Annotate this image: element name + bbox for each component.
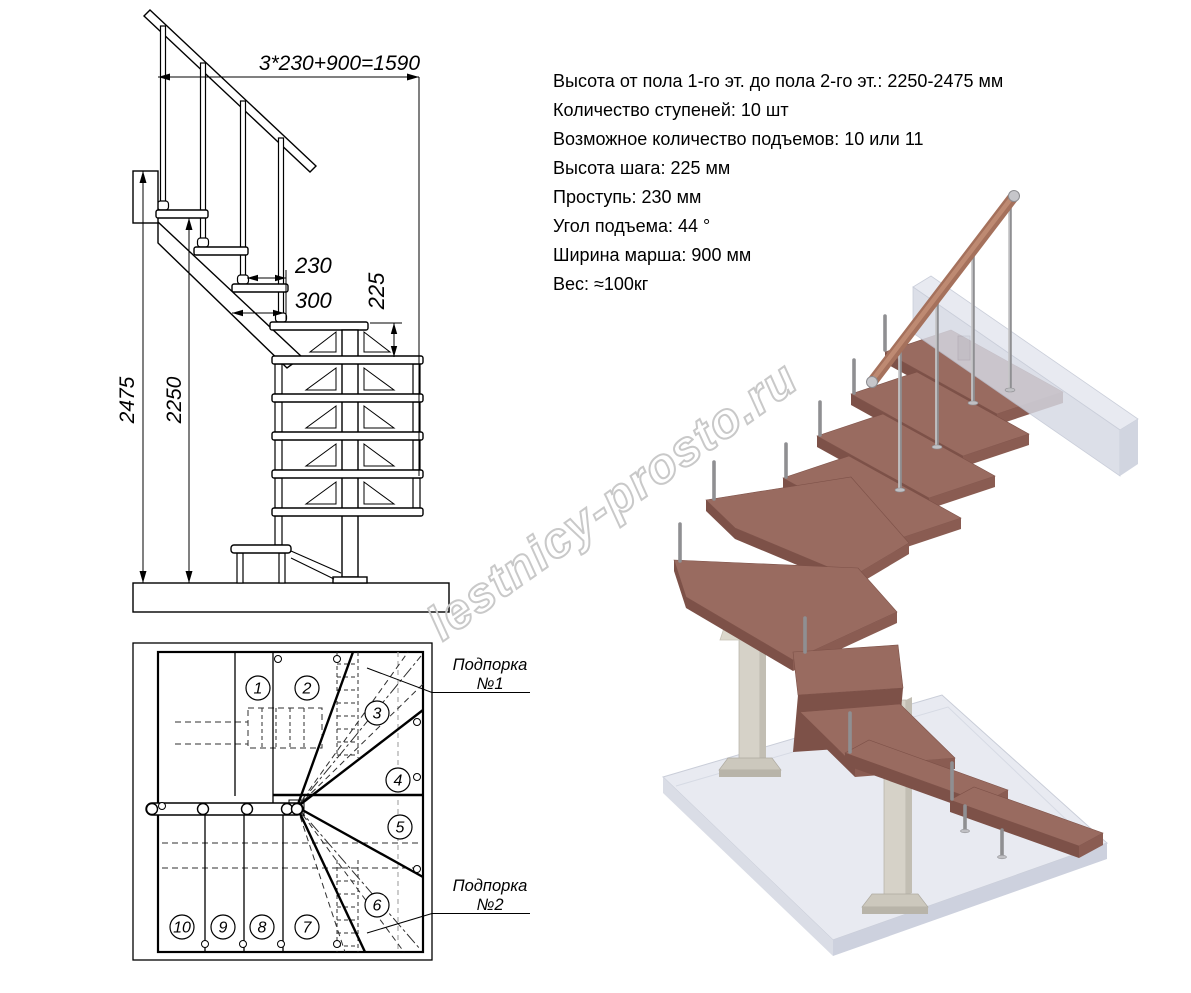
plan-baluster	[198, 804, 209, 815]
plan-baluster	[147, 804, 158, 815]
plan-baluster	[242, 804, 253, 815]
step-number-6: 6	[373, 898, 382, 915]
floor-slab	[133, 583, 449, 612]
spec-weight: Вес: ≈100кг	[553, 270, 1073, 299]
step-number-8: 8	[258, 920, 267, 937]
support2-title: Подпорка	[453, 877, 528, 895]
staircase-drawing-page: 3*230+900=1590 2475 2250 230 300	[0, 0, 1191, 993]
baluster	[201, 63, 206, 247]
spec-list: Высота от пола 1-го эт. до пола 2-го эт.…	[553, 67, 1073, 299]
dim-overlap: 300	[295, 288, 332, 313]
baluster-foot	[158, 201, 169, 210]
step-number-2: 2	[302, 681, 312, 698]
elevation-view: 3*230+900=1590 2475 2250 230 300	[116, 10, 449, 612]
step-number-1: 1	[254, 681, 263, 698]
step-number-10: 10	[173, 920, 191, 937]
baluster	[161, 26, 166, 210]
support2-number: №2	[476, 896, 503, 914]
step-number-3: 3	[373, 706, 382, 723]
column-base-plate	[333, 577, 367, 583]
support1-title: Подпорка	[453, 656, 528, 674]
spec-step-count: Количество ступеней: 10 шт	[553, 96, 1073, 125]
dim-height-max: 2475	[116, 376, 139, 424]
tread-edge	[232, 284, 288, 292]
step-number-4: 4	[394, 773, 403, 790]
handrail-end-cap	[867, 377, 878, 388]
step-number-5: 5	[396, 820, 405, 837]
spec-rise-count: Возможное количество подъемов: 10 или 11	[553, 125, 1073, 154]
baluster-foot	[238, 275, 249, 284]
baluster	[279, 138, 284, 322]
spec-tread-depth: Проступь: 230 мм	[553, 183, 1073, 212]
plan-view: 1 2 3 4 5 6 7 8 9 10 Подпорка №1	[133, 643, 530, 960]
spec-step-height: Высота шага: 225 мм	[553, 154, 1073, 183]
plan-baluster	[292, 804, 303, 815]
baluster	[241, 101, 246, 284]
dim-height-min: 2250	[163, 376, 186, 424]
wall-mount-plate	[958, 336, 970, 360]
center-column	[342, 330, 358, 577]
tread-edge	[156, 210, 208, 218]
baluster-foot	[198, 238, 209, 247]
handrail-elevation	[144, 10, 316, 172]
tread-edge	[270, 322, 368, 330]
step-number-7: 7	[303, 920, 313, 937]
tread-edge	[194, 247, 248, 255]
dim-total-width: 3*230+900=1590	[259, 52, 420, 75]
plan-handrail-bar	[146, 803, 303, 815]
render-3d	[663, 191, 1138, 957]
dim-run: 230	[294, 253, 332, 278]
wall-bracket	[133, 171, 158, 223]
support1-number: №1	[476, 675, 503, 693]
winder-stack	[272, 332, 423, 545]
step-number-9: 9	[219, 920, 228, 937]
spec-climb-angle: Угол подъема: 44 °	[553, 212, 1073, 241]
spec-flight-width: Ширина марша: 900 мм	[553, 241, 1073, 270]
spec-height-range: Высота от пола 1-го эт. до пола 2-го эт.…	[553, 67, 1073, 96]
bottom-step	[231, 545, 341, 583]
dim-rise: 225	[364, 272, 389, 310]
